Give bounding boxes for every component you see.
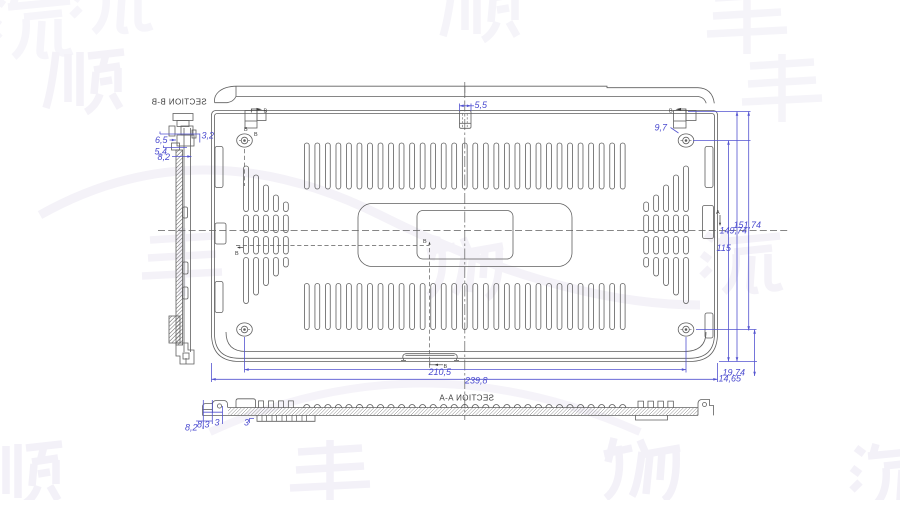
- svg-text:149,74: 149,74: [720, 226, 748, 236]
- svg-text:8,2: 8,2: [185, 423, 198, 433]
- svg-text:8,2: 8,2: [158, 152, 171, 162]
- svg-text:A: A: [716, 210, 720, 216]
- svg-text:239,8: 239,8: [464, 376, 488, 386]
- svg-text:115: 115: [717, 243, 732, 253]
- svg-text:3: 3: [244, 418, 249, 428]
- svg-text:3: 3: [215, 418, 220, 428]
- svg-text:9,7: 9,7: [655, 123, 669, 133]
- svg-text:3,2: 3,2: [202, 131, 215, 141]
- svg-text:B: B: [235, 251, 239, 257]
- svg-text:8,3: 8,3: [197, 420, 210, 430]
- svg-text:B: B: [264, 109, 268, 115]
- svg-text:B: B: [254, 132, 258, 138]
- svg-text:B: B: [244, 127, 248, 133]
- svg-text:SECTION A-A: SECTION A-A: [439, 394, 494, 403]
- svg-text:14,65: 14,65: [719, 374, 743, 384]
- svg-text:5,5: 5,5: [475, 100, 489, 110]
- svg-text:6,5: 6,5: [155, 135, 169, 145]
- svg-text:210,5: 210,5: [428, 367, 453, 377]
- svg-text:B: B: [669, 109, 673, 115]
- svg-text:B: B: [423, 239, 427, 245]
- svg-text:SECTION B-B: SECTION B-B: [151, 98, 207, 107]
